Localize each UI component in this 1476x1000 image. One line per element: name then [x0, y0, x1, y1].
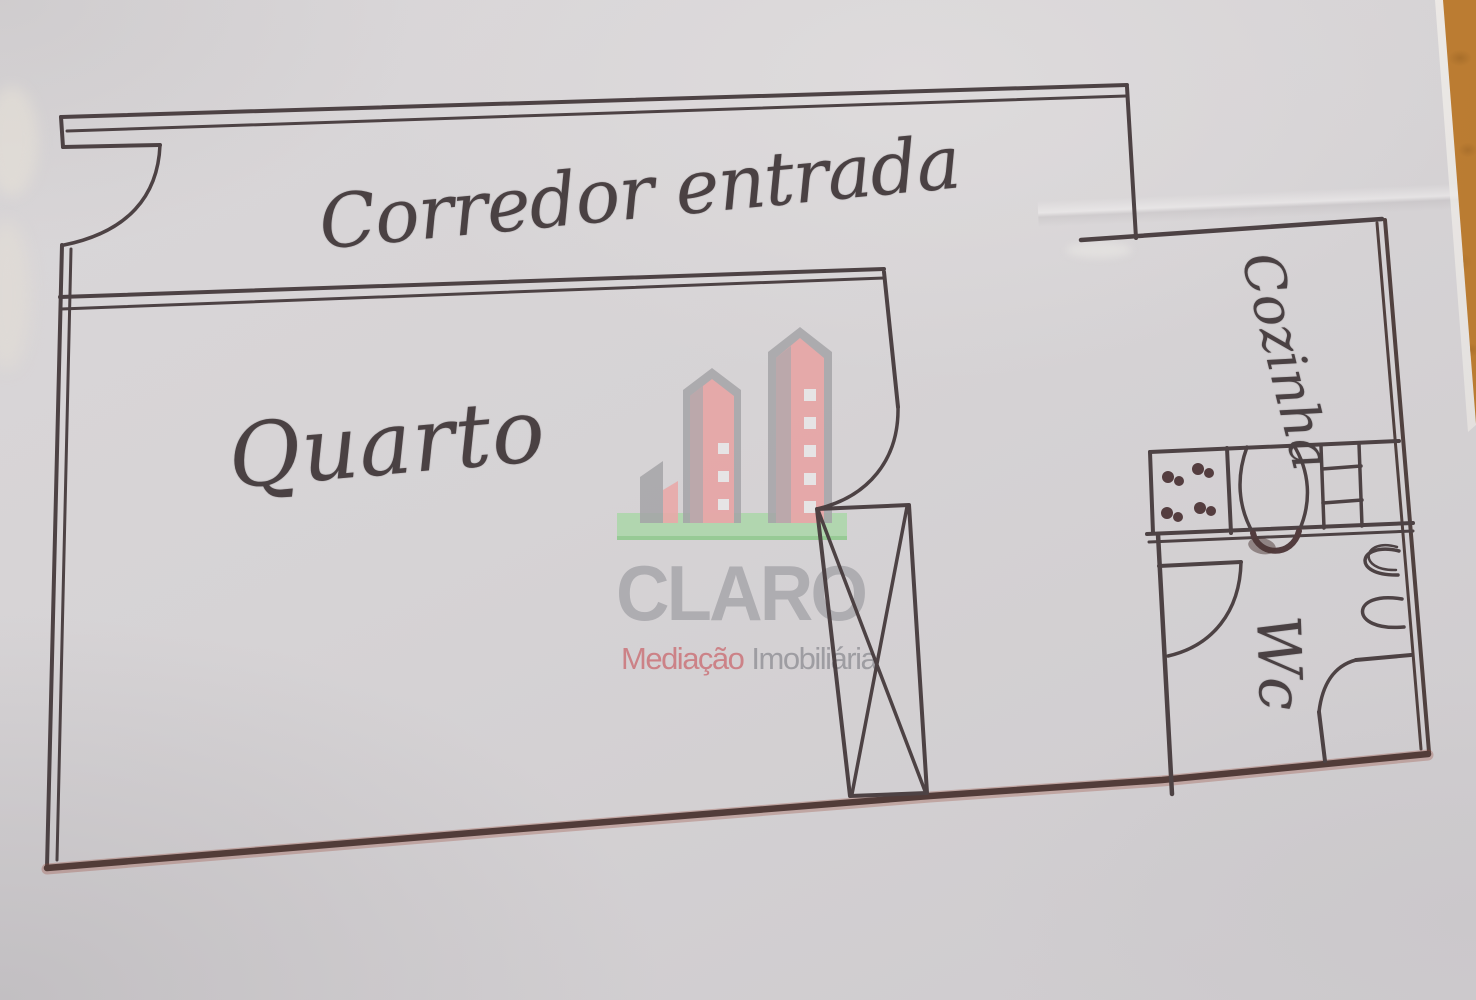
- entrance-door-arc: [64, 145, 160, 245]
- wardrobe: [817, 505, 927, 796]
- room-label-wc: Wc: [1242, 614, 1315, 712]
- corner-door: [1319, 655, 1411, 761]
- floorplan-photo: CLARO MediaçãoImobiliária: [0, 0, 1476, 1000]
- bedroom-door: [817, 407, 898, 509]
- bedroom-door-arc: [817, 407, 898, 509]
- wc-walls: [1158, 534, 1241, 794]
- wc-door-arc: [1168, 562, 1241, 656]
- corner-door-arc: [1319, 660, 1356, 712]
- stove-burners: [1161, 463, 1216, 522]
- entrance-door: [61, 117, 160, 245]
- toilet-fixtures: [1363, 545, 1405, 627]
- wc-door: [1168, 562, 1241, 656]
